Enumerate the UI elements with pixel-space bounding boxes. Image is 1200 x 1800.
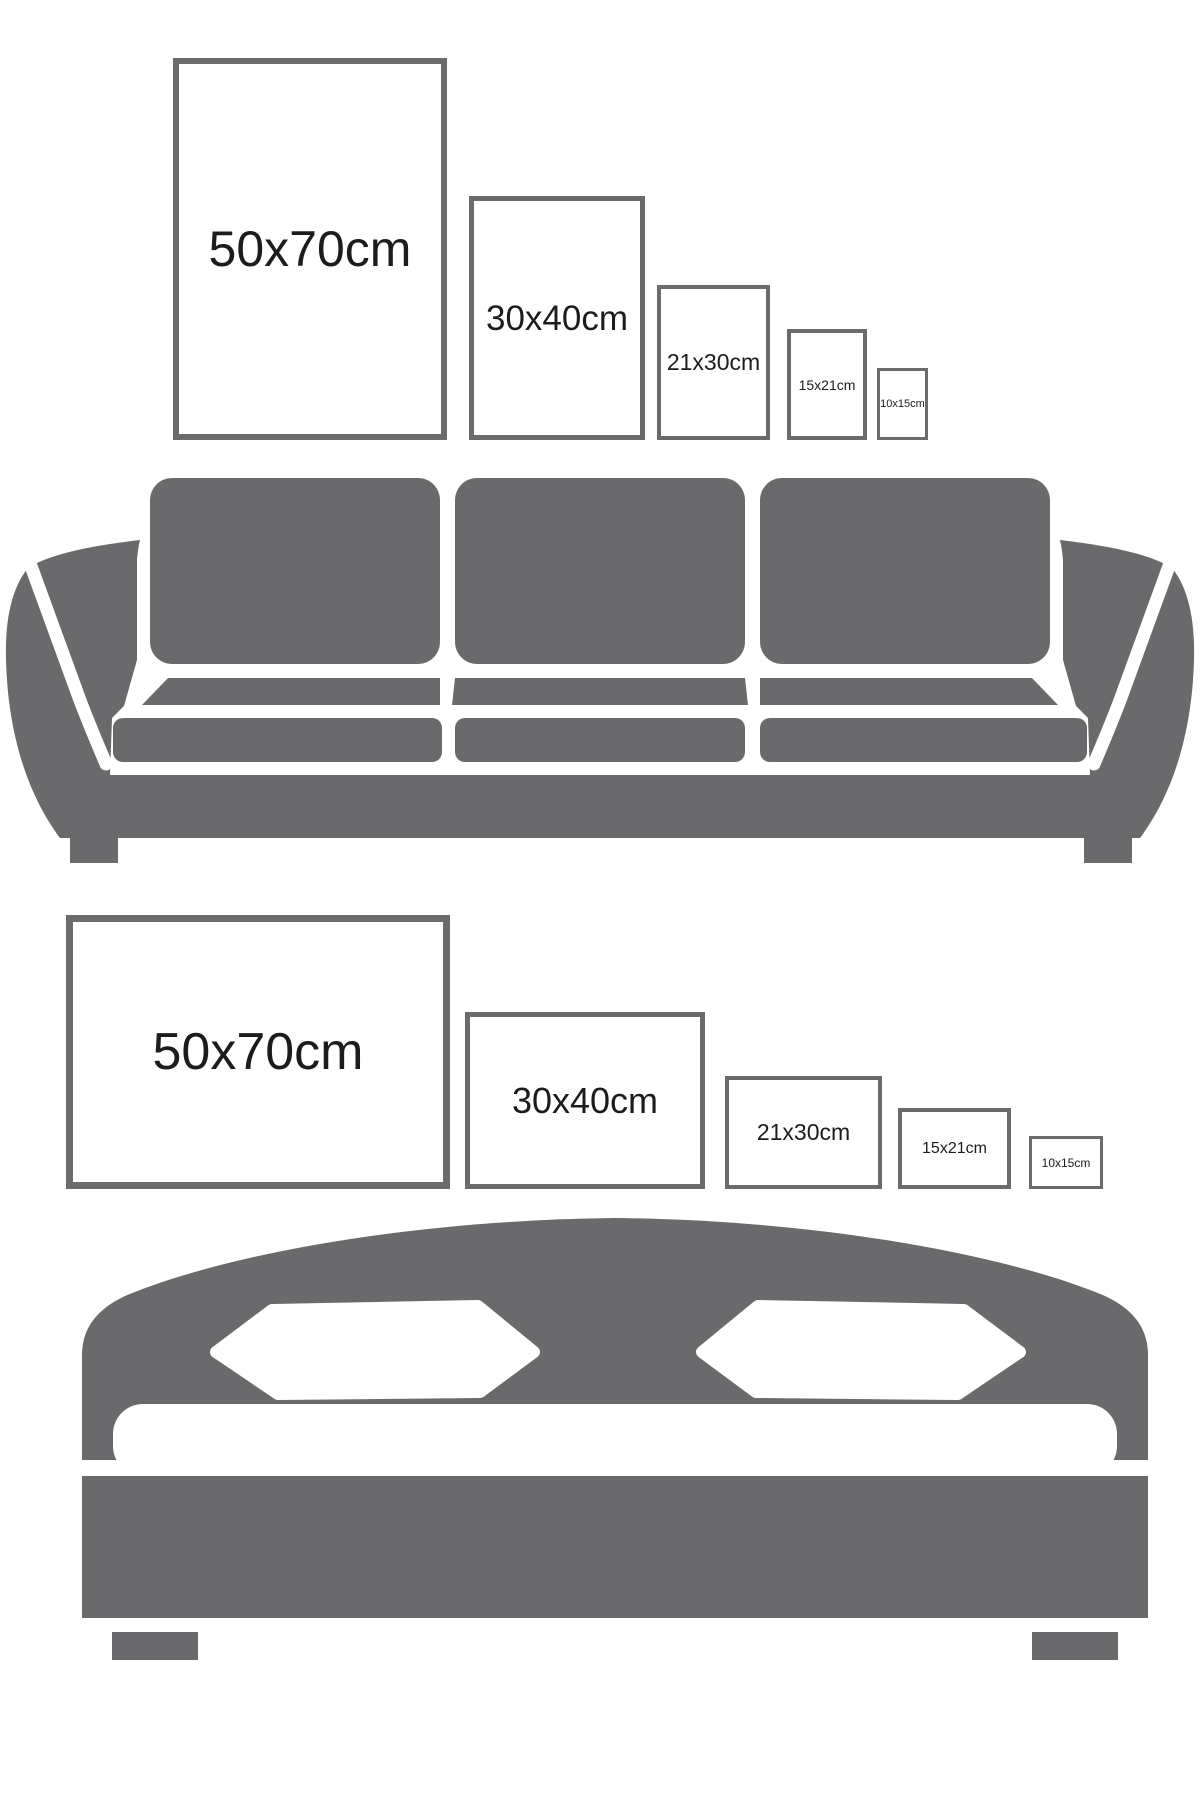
sofa-seat-deck [142,678,440,705]
size-label: 50x70cm [209,224,412,274]
sofa-seat-cushion [113,718,442,762]
size-frame-10x15-landscape: 10x15cm [1029,1136,1103,1189]
size-label: 21x30cm [667,351,760,374]
poster-size-guide: 50x70cm 30x40cm 21x30cm 15x21cm 10x15cm [0,0,1200,1800]
size-label: 30x40cm [486,301,628,336]
sofa-base [95,775,1105,838]
bed-pillow [216,1306,534,1394]
size-frame-15x21-landscape: 15x21cm [898,1108,1011,1189]
bed-foot [1032,1632,1118,1660]
size-label: 30x40cm [512,1083,658,1119]
size-frame-10x15-portrait: 10x15cm [877,368,928,440]
sofa-seat-deck [452,678,748,705]
sofa-back-cushion [455,478,745,664]
bed-foot [112,1632,198,1660]
size-label: 21x30cm [757,1121,850,1144]
sofa-back-cushion [760,478,1050,664]
size-frame-21x30-portrait: 21x30cm [657,285,770,440]
size-label: 15x21cm [922,1141,987,1157]
bed-pillow [702,1306,1020,1394]
size-frame-50x70-portrait: 50x70cm [173,58,447,440]
sofa-seat-deck [760,678,1058,705]
size-label: 10x15cm [880,399,925,410]
sofa-seat-cushion [455,718,745,762]
size-frame-30x40-portrait: 30x40cm [469,196,645,440]
sofa-seat-cushion [760,718,1087,762]
sofa-foot [1084,838,1132,863]
size-frame-30x40-landscape: 30x40cm [465,1012,705,1189]
size-frame-21x30-landscape: 21x30cm [725,1076,882,1189]
bed-mattress [113,1404,1117,1476]
size-frame-50x70-landscape: 50x70cm [66,915,450,1189]
bed-base [82,1476,1148,1618]
size-frame-15x21-portrait: 15x21cm [787,329,867,440]
sofa-icon [0,450,1200,870]
size-label: 10x15cm [1042,1157,1091,1169]
size-label: 50x70cm [153,1026,364,1078]
bed-icon [0,1190,1200,1670]
size-label: 15x21cm [799,378,856,392]
sofa-back-cushion [150,478,440,664]
sofa-foot [70,838,118,863]
